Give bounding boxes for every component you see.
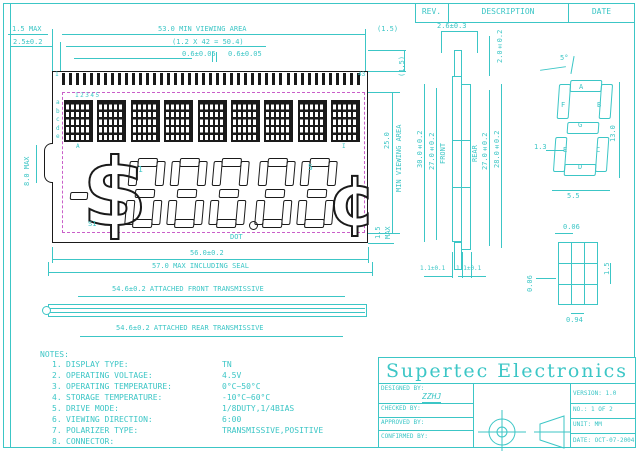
note-value: 1/8DUTY,1/4BIAS — [222, 404, 294, 413]
segment-label: G — [578, 122, 582, 130]
dim-label: 53.0 MIN VIEWING AREA — [158, 26, 247, 34]
connector-pin — [237, 73, 240, 85]
connector-pin — [216, 73, 219, 85]
segment — [132, 219, 153, 228]
segment — [179, 158, 200, 167]
connector-pin — [195, 73, 198, 85]
matrix-row — [64, 100, 360, 142]
dim-label: 0.94 — [566, 317, 583, 325]
dim-line — [404, 50, 405, 71]
dim-line — [36, 145, 37, 183]
dim-label: (1.5) — [399, 51, 407, 77]
connector-pin — [83, 73, 86, 85]
segment — [170, 161, 181, 187]
dim-line — [66, 46, 266, 47]
dim-line — [10, 46, 52, 47]
segment — [219, 189, 240, 198]
connector-pin — [279, 73, 282, 85]
dim-label: REAR — [472, 132, 480, 162]
dim-line — [8, 34, 48, 35]
dim-line — [610, 263, 611, 284]
sign-label: S1 — [88, 221, 96, 229]
extension-line — [368, 243, 394, 244]
note-label: DRIVE MODE: — [66, 404, 119, 413]
dim-line — [555, 233, 573, 234]
matrix-block-label-first: A — [76, 144, 80, 151]
side-profile — [48, 304, 367, 317]
leader-line — [536, 278, 556, 279]
extension-line — [368, 92, 400, 93]
approved-by-label: APPROVED BY: — [381, 420, 424, 427]
extension-line — [368, 50, 406, 51]
note-num: 8. — [52, 437, 62, 446]
version-field: VERSION: 1.0 — [573, 391, 616, 398]
connector-pin — [132, 73, 135, 85]
connector-pin — [69, 73, 72, 85]
segment — [212, 161, 223, 187]
dim-label: 54.6±0.2 ATTACHED FRONT TRANSMISSIVE — [112, 286, 264, 294]
dot-grid — [558, 242, 598, 305]
segment-label: B — [597, 102, 601, 110]
note-label: VIEWING DIRECTION: — [66, 415, 153, 424]
connector-pin — [90, 73, 93, 85]
grid-line — [584, 242, 585, 305]
extension-line — [462, 252, 463, 278]
connector-pin — [287, 73, 290, 85]
segment-label: F — [561, 102, 565, 110]
dim-line — [424, 276, 452, 277]
extension-line — [477, 31, 478, 53]
dot-label: DOT — [230, 234, 243, 242]
digit — [166, 158, 208, 228]
note-num: 2. — [52, 371, 62, 380]
dot-matrix-block — [131, 100, 160, 142]
note-value: TRANSMISSIVE,POSITIVE — [222, 426, 323, 435]
segment — [258, 161, 269, 187]
frame-inner-line — [10, 3, 11, 448]
profile-line — [50, 312, 365, 313]
dim-line — [552, 190, 610, 191]
segment-label: C — [596, 147, 600, 155]
note-label: DISPLAY TYPE: — [66, 360, 129, 369]
connector-pin — [111, 73, 114, 85]
connector-pin — [209, 73, 212, 85]
connector-pin — [188, 73, 191, 85]
dim-label: 0.6±0.05 — [228, 51, 262, 59]
connector-pin — [308, 73, 311, 85]
connector-pin — [181, 73, 184, 85]
connector-pin — [301, 73, 304, 85]
dot-matrix-block — [164, 100, 193, 142]
dim-label: 56.0±0.2 — [190, 250, 224, 258]
segment — [307, 189, 328, 198]
matrix-row-letter: e — [56, 134, 60, 141]
connector-pin — [139, 73, 142, 85]
segment-label: A — [579, 84, 583, 92]
dim-line — [80, 336, 343, 337]
dim-label: 8.0 MAX — [24, 146, 32, 186]
note-value: 4.5V — [222, 371, 241, 380]
connector-pin — [97, 73, 100, 85]
date-field: DATE: OCT-07-2004 — [573, 438, 634, 445]
note-num: 5. — [52, 404, 62, 413]
segment — [595, 137, 609, 172]
dim-label: MIN VIEWING AREA — [396, 102, 404, 192]
dim-label: FRONT — [440, 132, 448, 164]
connector-pin — [294, 73, 297, 85]
date-header: DATE — [568, 8, 635, 17]
dim-label: 25.0 — [384, 121, 392, 149]
note-num: 6. — [52, 415, 62, 424]
company-name: Supertec Electronics — [378, 360, 636, 382]
extension-line — [368, 71, 406, 72]
grid-line — [571, 242, 572, 305]
title-block-line — [378, 403, 473, 404]
checked-by-label: CHECKED BY: — [381, 406, 421, 413]
profile-line — [50, 308, 365, 309]
note-num: 3. — [52, 382, 62, 391]
section-line — [452, 140, 471, 141]
connector-pin — [251, 73, 254, 85]
connector-pin — [315, 73, 318, 85]
dim-label: 54.6±0.2 ATTACHED REAR TRANSMISSIVE — [116, 325, 264, 333]
connector-pin — [322, 73, 325, 85]
profile-end-cap — [42, 306, 51, 315]
segment — [262, 219, 283, 228]
dot-matrix-block — [198, 100, 227, 142]
extension-line — [471, 252, 472, 278]
dim-line — [441, 31, 477, 32]
connector-pin — [244, 73, 247, 85]
section-line — [452, 187, 471, 188]
dim-label: 27.0±0.2 — [429, 124, 437, 170]
note-label: OPERATING TEMPERATURE: — [66, 382, 172, 391]
extension-line — [441, 31, 442, 53]
description-header: DESCRIPTION — [448, 8, 568, 17]
connector-pin — [272, 73, 275, 85]
extension-line — [52, 29, 53, 71]
dim-label: 0.06 — [527, 268, 535, 292]
digit — [124, 158, 166, 228]
matrix-row-letter: b — [56, 109, 60, 116]
dim-label: 2.6±0.3 — [437, 23, 467, 31]
connector-pin — [76, 73, 79, 85]
dim-label: 5.5 — [567, 193, 580, 201]
connector-pin — [343, 73, 346, 85]
connector-pin — [118, 73, 121, 85]
note-value: 0°C~50°C — [222, 382, 261, 391]
rev-header: REV. — [415, 8, 448, 17]
pin-number-first: 1 — [55, 72, 59, 79]
title-block-line — [570, 403, 636, 404]
dot-matrix-block — [231, 100, 260, 142]
dim-label: 28.0±0.2 — [494, 122, 502, 168]
dim-label: 13.0 — [610, 112, 618, 142]
dim-line — [78, 296, 345, 297]
segment — [177, 189, 198, 198]
connector-pin — [153, 73, 156, 85]
digit — [254, 158, 296, 228]
dim-label: 57.0 MAX INCLUDING SEAL — [152, 263, 249, 271]
connector-pin — [329, 73, 332, 85]
note-value: 6:00 — [222, 415, 241, 424]
extension-line — [489, 36, 490, 76]
designed-by-signature: ZZHJ — [422, 393, 441, 403]
note-label: OPERATING VOLTAGE: — [66, 371, 153, 380]
dot-matrix-block — [264, 100, 293, 142]
connector-pin — [223, 73, 226, 85]
segment — [265, 189, 286, 198]
note-num: 7. — [52, 426, 62, 435]
confirmed-by-label: CONFIRMED BY: — [381, 434, 428, 441]
dim-line — [392, 92, 393, 233]
matrix-row-letter: a — [56, 100, 60, 107]
dim-label: 1.3 — [534, 144, 547, 152]
dot-matrix-block — [331, 100, 360, 142]
leader-line — [546, 150, 564, 151]
connector-pin — [230, 73, 233, 85]
connector-pin — [350, 73, 353, 85]
dim-line — [571, 313, 584, 314]
extension-line — [52, 247, 53, 263]
dot-matrix-block — [64, 100, 93, 142]
connector-pin — [265, 73, 268, 85]
engineering-drawing: REV. DESCRIPTION DATE 1.5 MAX 2.5±0.2 53… — [0, 0, 639, 451]
title-block-line — [570, 418, 636, 419]
segment — [566, 122, 599, 134]
matrix-col-numbers: 12345 — [75, 93, 101, 100]
dim-label: 5° — [560, 55, 568, 63]
section-tab-top — [454, 50, 462, 78]
connector-pin — [258, 73, 261, 85]
notes-title: NOTES: — [40, 350, 69, 359]
pin-number-last: 43 — [358, 72, 365, 79]
dim-label: 27.0±0.2 — [482, 124, 490, 170]
dim-line — [48, 272, 372, 273]
projection-symbol — [468, 406, 578, 451]
connector-pin — [62, 73, 65, 85]
digit — [208, 158, 250, 228]
grid-line — [558, 263, 598, 264]
extension-line — [60, 42, 61, 71]
segment-detail-digit — [553, 80, 614, 176]
segment — [267, 158, 288, 167]
extension-line — [368, 247, 369, 263]
segment — [135, 189, 156, 198]
title-block-line — [378, 417, 473, 418]
matrix-block-label-last: I — [342, 144, 346, 151]
dim-label: 1.5 MAX — [12, 26, 42, 34]
grid-line — [558, 284, 598, 285]
connector-pin — [336, 73, 339, 85]
designed-by-label: DESIGNED BY: — [381, 386, 424, 393]
segment — [174, 219, 195, 228]
connector-pin — [202, 73, 205, 85]
section-rear-glass — [461, 84, 471, 250]
matrix-row-letter: c — [56, 117, 60, 124]
segment-label: D — [578, 164, 582, 172]
dim-line — [74, 58, 192, 59]
dim-label: 1.1±0.1 — [420, 266, 445, 273]
tick-mark — [212, 52, 213, 62]
segment — [569, 80, 602, 92]
note-label: STORAGE TEMPERATURE: — [66, 393, 162, 402]
note-value: -10°C~60°C — [222, 393, 270, 402]
dim-label: 0.06 — [563, 224, 580, 232]
dim-label: (1.5) — [377, 26, 398, 34]
segment — [221, 158, 242, 167]
segment — [304, 219, 325, 228]
title-block-line — [378, 383, 636, 384]
tick-mark — [216, 52, 217, 62]
extension-line — [372, 262, 373, 276]
matrix-row-letter: d — [56, 126, 60, 133]
connector-pin — [125, 73, 128, 85]
extension-line — [452, 252, 453, 278]
segment — [216, 219, 237, 228]
dim-label: 2.0±0.2 — [497, 29, 505, 63]
note-value: TN — [222, 360, 232, 369]
connector-pin — [146, 73, 149, 85]
side-tab — [44, 143, 53, 183]
dim-line — [62, 34, 365, 35]
connector-pin — [167, 73, 170, 85]
dim-label: MAX — [385, 219, 393, 239]
note-num: 4. — [52, 393, 62, 402]
digit-number-label: 5 — [308, 164, 313, 173]
dim-label: 1.1±0.1 — [456, 266, 481, 273]
title-block-line — [570, 433, 636, 434]
dim-label: 30.0±0.2 — [417, 122, 425, 168]
connector-pin — [174, 73, 177, 85]
connector-pin — [104, 73, 107, 85]
dot-matrix-block — [298, 100, 327, 142]
digit-number-label: 1 — [138, 166, 143, 175]
pin-row — [62, 73, 360, 85]
dim-label: 1.5 — [375, 219, 383, 239]
dim-line — [52, 259, 368, 260]
dot-matrix-block — [97, 100, 126, 142]
connector-pin — [160, 73, 163, 85]
note-label: POLARIZER TYPE: — [66, 426, 138, 435]
sheet-number-field: NO.: 1 OF 2 — [573, 407, 613, 414]
extension-line — [48, 262, 49, 276]
note-num: 1. — [52, 360, 62, 369]
dim-line — [619, 82, 620, 178]
cent-symbol: ¢ — [328, 166, 377, 236]
note-label: CONNECTOR: — [66, 437, 114, 446]
title-block-line — [378, 430, 473, 431]
